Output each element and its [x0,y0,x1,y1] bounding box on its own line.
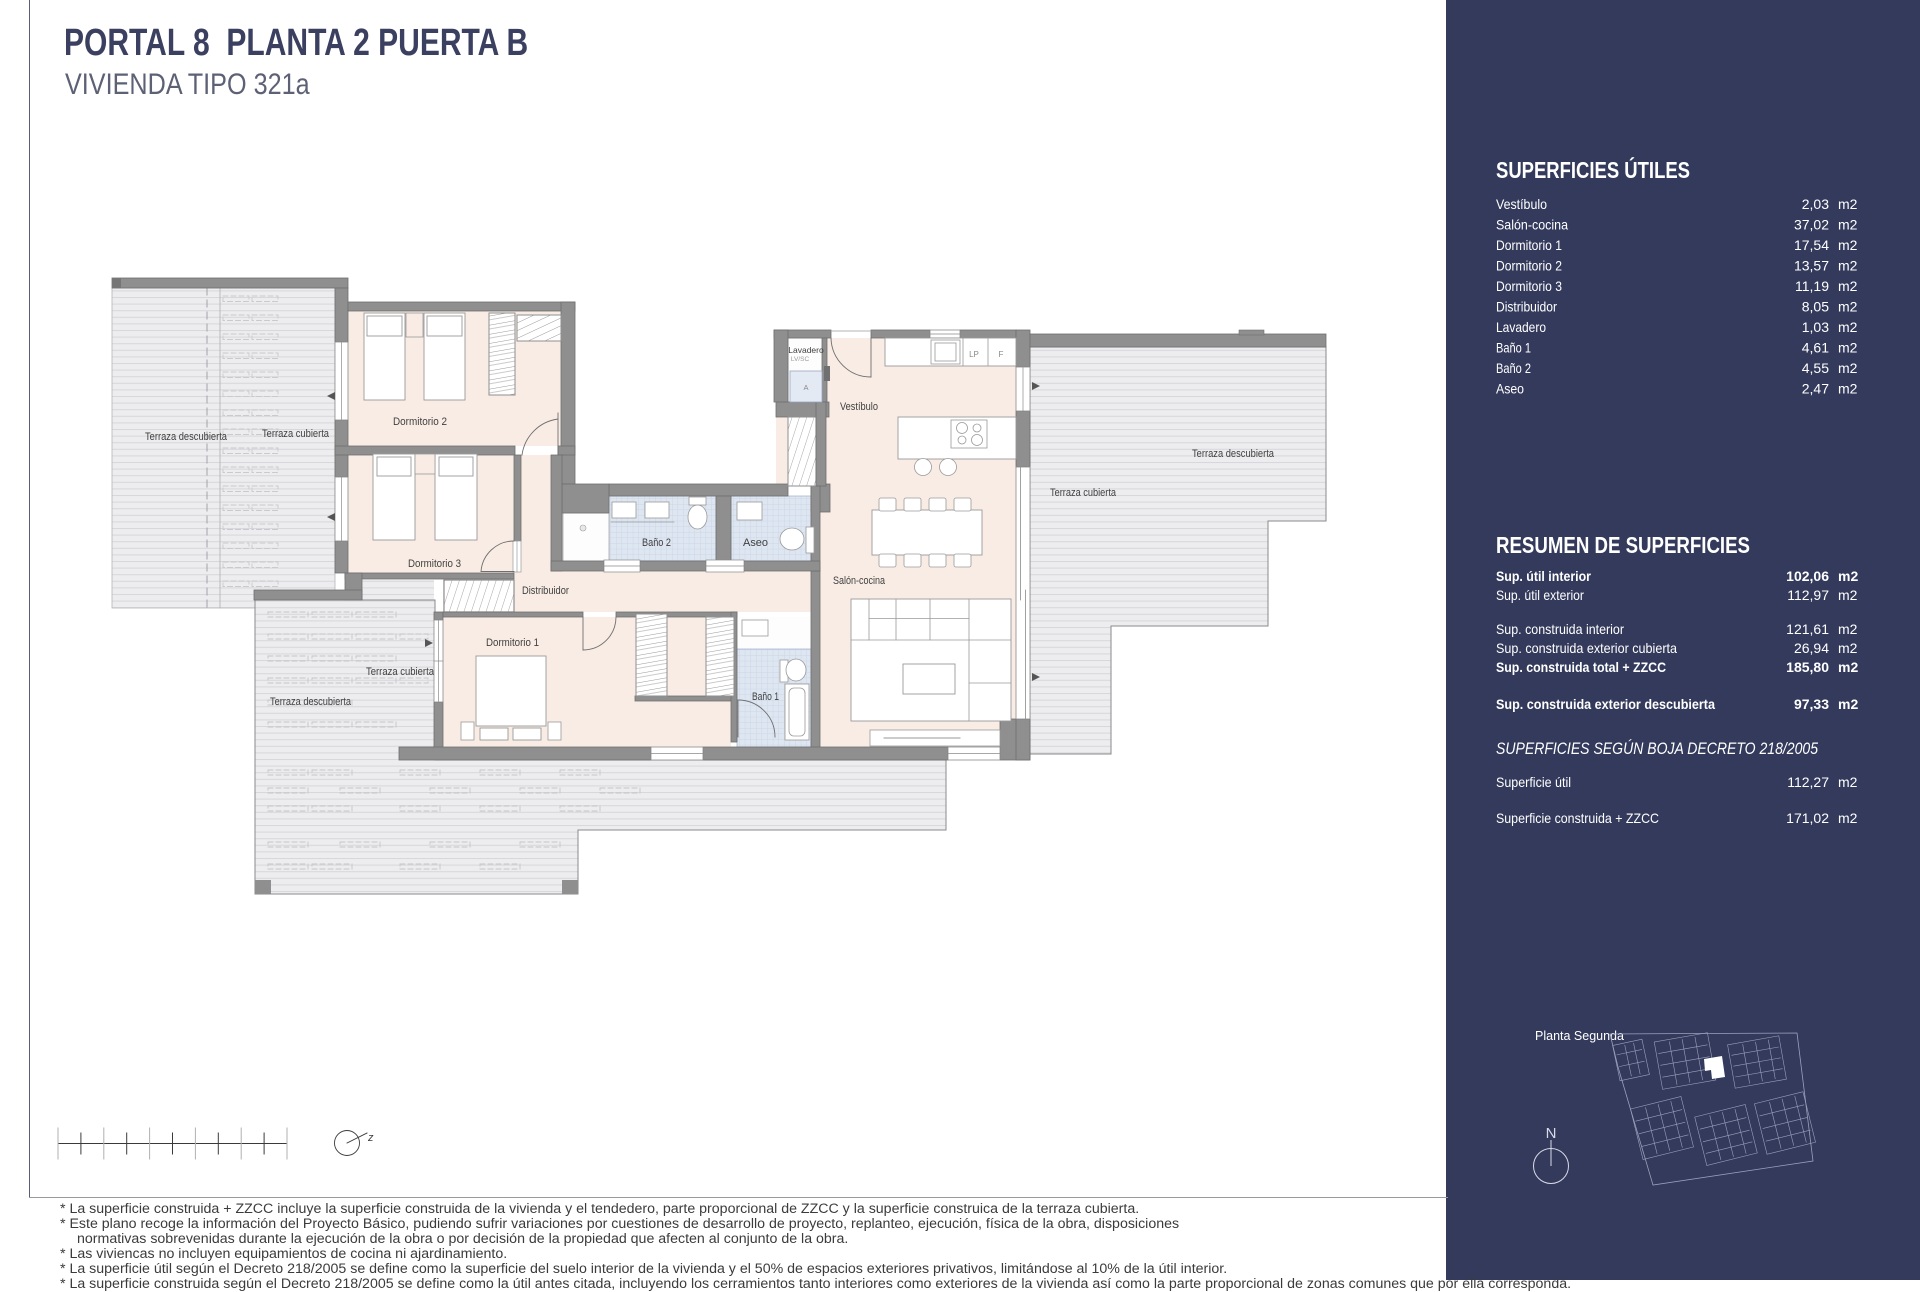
svg-text:F: F [999,350,1004,359]
svg-text:m2: m2 [1838,217,1858,233]
svg-text:m2: m2 [1838,381,1858,397]
svg-text:m2: m2 [1838,774,1858,790]
svg-text:Baño 1: Baño 1 [752,691,779,703]
svg-text:Distribuidor: Distribuidor [522,585,569,597]
svg-text:2,47: 2,47 [1802,381,1829,397]
svg-text:LV/SC: LV/SC [791,356,810,363]
svg-text:m2: m2 [1838,810,1858,826]
svg-text:Baño 1: Baño 1 [1496,340,1531,356]
svg-text:13,57: 13,57 [1794,258,1829,274]
svg-text:Dormitorio 2: Dormitorio 2 [1496,258,1562,274]
svg-text:m2: m2 [1838,587,1858,603]
svg-text:Terraza cubierta: Terraza cubierta [262,428,330,440]
svg-text:m2: m2 [1838,659,1858,675]
svg-text:Superficie útil: Superficie útil [1496,774,1571,790]
svg-text:A: A [803,383,808,392]
svg-text:102,06: 102,06 [1786,568,1829,584]
svg-text:1,03: 1,03 [1802,319,1829,335]
svg-text:Terraza cubierta: Terraza cubierta [366,666,435,678]
svg-text:Sup. construida exterior descu: Sup. construida exterior descubierta [1496,696,1715,712]
svg-text:121,61: 121,61 [1786,621,1829,637]
svg-text:Baño 2: Baño 2 [1496,360,1531,376]
svg-text:z: z [367,1132,374,1144]
svg-text:Dormitorio 2: Dormitorio 2 [393,416,447,428]
svg-text:Dormitorio 3: Dormitorio 3 [1496,278,1562,294]
svg-text:m2: m2 [1838,360,1858,376]
svg-text:Baño 2: Baño 2 [642,537,671,549]
svg-text:Sup. construida total + ZZCC: Sup. construida total + ZZCC [1496,659,1666,675]
svg-text:Sup. construida exterior cubie: Sup. construida exterior cubierta [1496,640,1677,656]
svg-text:RESUMEN DE SUPERFICIES: RESUMEN DE SUPERFICIES [1496,532,1750,558]
svg-text:m2: m2 [1838,568,1858,584]
svg-text:8,05: 8,05 [1802,299,1829,315]
svg-text:Sup. útil exterior: Sup. útil exterior [1496,587,1584,603]
svg-text:Lavadero: Lavadero [1496,319,1546,335]
svg-text:4,61: 4,61 [1802,340,1829,356]
svg-text:Vestíbulo: Vestíbulo [840,401,878,413]
svg-text:m2: m2 [1838,258,1858,274]
svg-text:m2: m2 [1838,299,1858,315]
svg-text:Vestíbulo: Vestíbulo [1496,196,1547,212]
svg-text:11,19: 11,19 [1795,278,1829,294]
svg-text:26,94: 26,94 [1794,640,1829,656]
svg-text:Terraza descubierta: Terraza descubierta [1192,448,1275,460]
svg-text:Dormitorio 3: Dormitorio 3 [408,558,461,570]
svg-text:SUPERFICIES SEGÚN BOJA DECRETO: SUPERFICIES SEGÚN BOJA DECRETO 218/2005 [1496,739,1819,758]
svg-text:97,33: 97,33 [1794,696,1829,712]
svg-text:m2: m2 [1838,640,1858,656]
svg-text:Lavadero: Lavadero [788,345,824,355]
svg-text:Sup. útil interior: Sup. útil interior [1496,568,1591,584]
svg-text:171,02: 171,02 [1786,810,1829,826]
svg-text:4,55: 4,55 [1802,360,1829,376]
svg-text:Dormitorio 1: Dormitorio 1 [486,637,539,649]
svg-text:2,03: 2,03 [1802,196,1829,212]
svg-text:m2: m2 [1838,696,1858,712]
svg-text:Aseo: Aseo [743,537,768,549]
svg-text:37,02: 37,02 [1794,217,1829,233]
svg-text:LP: LP [969,350,979,359]
svg-text:m2: m2 [1838,196,1858,212]
svg-text:m2: m2 [1838,340,1858,356]
svg-text:m2: m2 [1838,621,1858,637]
svg-text:m2: m2 [1838,319,1858,335]
svg-text:Terraza descubierta: Terraza descubierta [270,696,352,708]
svg-text:Sup. construida interior: Sup. construida interior [1496,621,1624,637]
svg-text:112,97: 112,97 [1787,587,1829,603]
svg-text:Dormitorio 1: Dormitorio 1 [1496,237,1562,253]
svg-text:SUPERFICIES ÚTILES: SUPERFICIES ÚTILES [1496,156,1690,183]
svg-text:Aseo: Aseo [1496,381,1524,397]
svg-text:Distribuidor: Distribuidor [1496,299,1557,315]
svg-text:185,80: 185,80 [1786,659,1829,675]
svg-text:Terraza descubierta: Terraza descubierta [145,431,228,443]
svg-text:m2: m2 [1838,278,1858,294]
svg-text:Superficie construida + ZZCC: Superficie construida + ZZCC [1496,810,1659,826]
svg-text:N: N [1546,1125,1557,1142]
svg-text:Salón-cocina: Salón-cocina [833,575,886,587]
svg-text:17,54: 17,54 [1794,237,1829,253]
svg-text:Salón-cocina: Salón-cocina [1496,217,1568,233]
svg-text:m2: m2 [1838,237,1858,253]
svg-text:Terraza cubierta: Terraza cubierta [1050,487,1117,499]
svg-text:112,27: 112,27 [1787,774,1829,790]
